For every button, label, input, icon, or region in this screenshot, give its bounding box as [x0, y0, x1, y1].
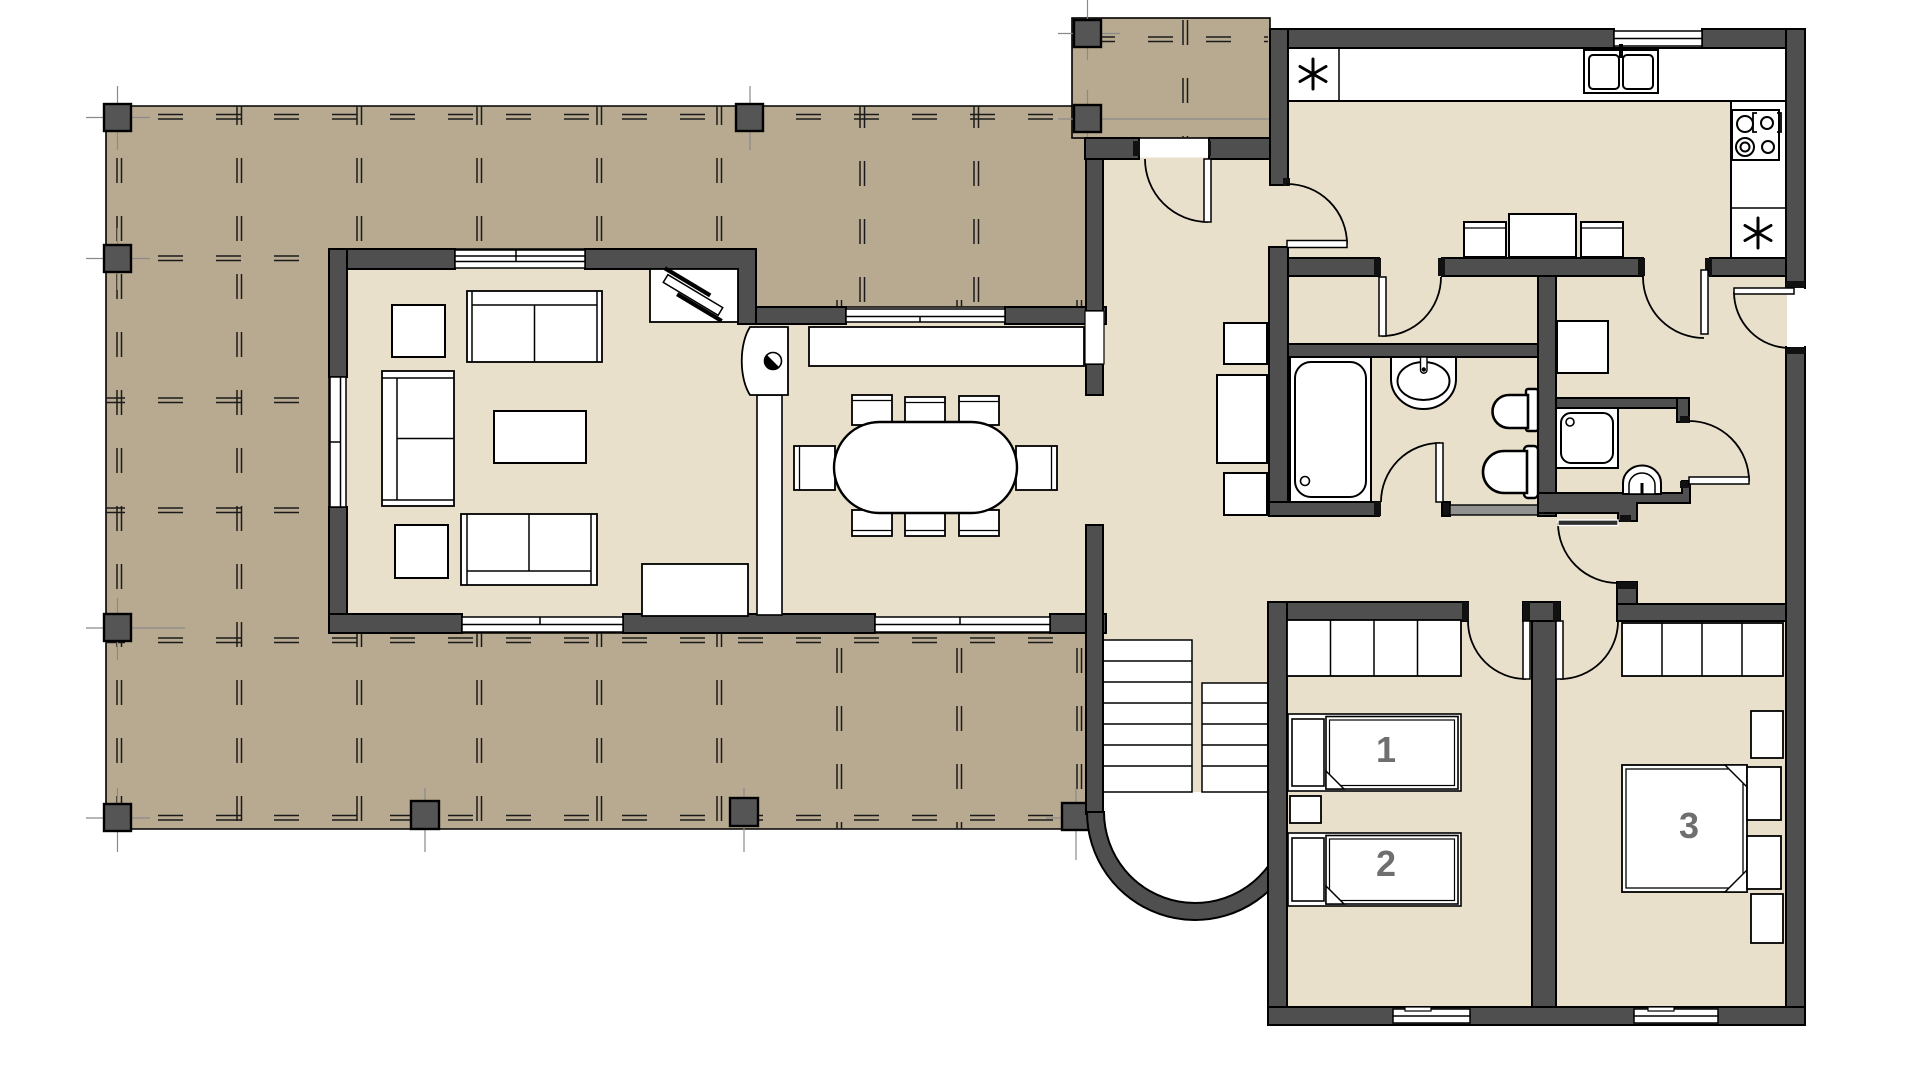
- svg-text:3: 3: [1679, 805, 1699, 846]
- svg-text:2: 2: [1376, 843, 1396, 884]
- svg-text:1: 1: [1376, 729, 1396, 770]
